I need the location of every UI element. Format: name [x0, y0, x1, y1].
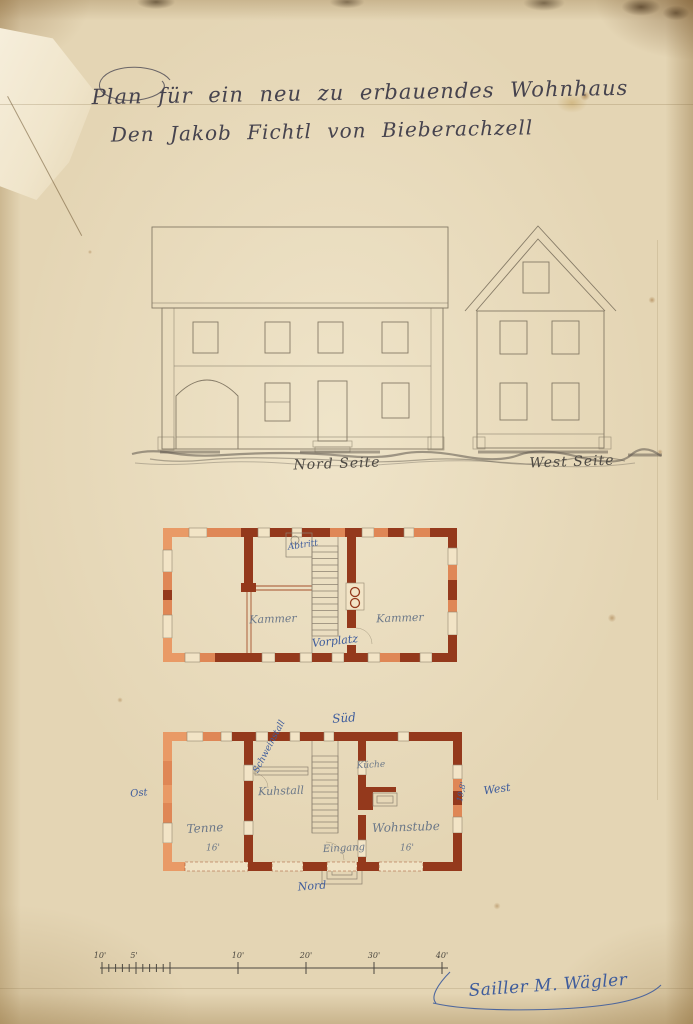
room-label-kueche: Küche — [357, 761, 386, 771]
scale-mark-10: 10' — [232, 952, 244, 960]
orientation-label-ost: Ost — [130, 788, 148, 799]
dimension-wohnstube: 16' — [400, 845, 414, 854]
elevation-north-drawing — [152, 227, 448, 452]
scale-mark-20: 20' — [300, 952, 312, 960]
orientation-label-west: West — [483, 782, 511, 797]
orientation-label-sued: Süd — [332, 711, 356, 725]
scale-mark-30: 30' — [368, 952, 380, 960]
room-label-tenne: Tenne — [186, 821, 223, 835]
room-label-kammer-right: Kammer — [376, 612, 424, 625]
room-label-wohnstube: Wohnstube — [372, 820, 440, 834]
scale-mark-10-left: 10' — [94, 952, 106, 960]
scale-mark-5: 5' — [130, 952, 137, 960]
ground-floor-plan-drawing — [163, 732, 462, 884]
plan-line-art — [0, 0, 693, 1024]
scanned-plan-page: Plan für ein neu zu erbauendes Wohnhaus … — [0, 0, 693, 1024]
scale-mark-40: 40' — [436, 952, 448, 960]
west-elevation-caption: West Seite — [529, 454, 614, 471]
scale-bar — [100, 962, 448, 974]
orientation-label-nord: Nord — [297, 880, 326, 893]
room-label-kammer-left: Kammer — [249, 613, 297, 626]
elevation-west-drawing — [465, 226, 616, 449]
north-elevation-caption: Nord Seite — [293, 455, 380, 472]
dimension-tenne: 16' — [206, 845, 220, 854]
room-label-kuhstall: Kuhstall — [258, 785, 304, 798]
